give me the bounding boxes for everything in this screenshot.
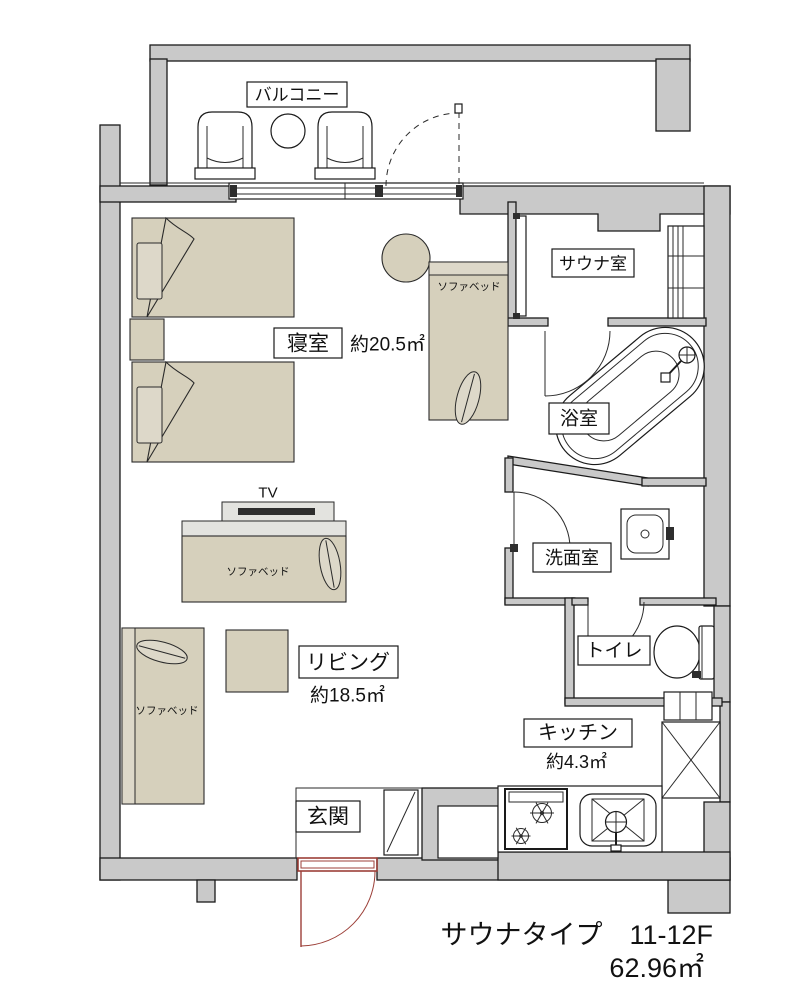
sofa-bed-center xyxy=(182,521,346,602)
balcony-left-wall xyxy=(150,59,167,185)
kitchen xyxy=(498,786,662,852)
sliding-window xyxy=(229,183,463,199)
top-left-wall xyxy=(100,186,236,202)
balcony-top-wall xyxy=(150,45,690,61)
sofa-bed-center-label: ソファベッド xyxy=(227,566,290,578)
bottom-right-nub xyxy=(668,880,730,913)
shelf-slats xyxy=(664,692,712,720)
entrance-niche xyxy=(438,806,498,858)
balcony xyxy=(195,112,375,179)
toilet-north-wall xyxy=(640,598,716,605)
washroom-label: 洗面室 xyxy=(545,548,599,568)
kitchen-area-label: 約4.3㎡ xyxy=(546,751,607,772)
bottom-left-nub xyxy=(197,880,215,902)
toilet xyxy=(654,626,714,679)
wash-basin xyxy=(621,509,674,559)
kitchen-sink xyxy=(580,794,656,851)
sofa-bed-left-label: ソファベッド xyxy=(136,705,199,717)
right-wall-shaft xyxy=(720,702,730,802)
top-right-wall xyxy=(460,186,730,231)
toilet-label: トイレ xyxy=(585,641,642,662)
balcony-right-wall xyxy=(656,59,690,131)
shoe-cabinet xyxy=(384,790,418,855)
nightstand xyxy=(130,319,164,360)
bedroom-label: 寝室 xyxy=(287,333,329,356)
plan-type-label: サウナタイプ 11-12F xyxy=(440,920,713,950)
tv-board xyxy=(222,502,334,521)
living-label: リビング xyxy=(306,652,390,675)
floor-plan-page: バルコニー 寝室 約20.5㎡ サウナ室 浴室 洗面室 トイレ リビング 約18… xyxy=(0,0,791,1000)
living-area-label: 約18.5㎡ xyxy=(310,684,385,707)
tv-label: TV xyxy=(258,485,277,502)
pipe-shaft xyxy=(662,722,720,798)
bed-top-pillow xyxy=(137,243,162,299)
washroom-west-wall-upper xyxy=(505,458,513,492)
bed-bottom-pillow xyxy=(137,387,162,443)
right-wall-mid xyxy=(714,606,730,702)
floor-plan-svg: バルコニー 寝室 約20.5㎡ サウナ室 浴室 洗面室 トイレ リビング 約18… xyxy=(0,0,791,1000)
balcony-chair-right xyxy=(315,112,375,179)
plan-total-area-label: 62.96㎡ xyxy=(609,953,704,983)
sauna-label: サウナ室 xyxy=(559,255,627,274)
balcony-table xyxy=(271,114,305,148)
entrance-door xyxy=(298,858,377,947)
balcony-door xyxy=(386,104,462,186)
sauna-west-wall xyxy=(508,202,516,324)
sauna-door-panel xyxy=(516,216,526,316)
square-table xyxy=(226,630,288,692)
sofa-bed-right-label: ソファベッド xyxy=(438,281,501,293)
balcony-label: バルコニー xyxy=(255,86,340,105)
kitchen-label: キッチン xyxy=(538,722,618,744)
round-table xyxy=(382,234,430,282)
right-wall-upper xyxy=(704,186,730,606)
sauna-bench xyxy=(668,226,704,318)
toilet-west-wall xyxy=(565,598,574,704)
washroom-west-wall-lower xyxy=(505,548,513,604)
sauna-bath-wall-east xyxy=(608,318,706,326)
bottom-left-wall xyxy=(100,858,297,880)
bathtub xyxy=(540,311,720,480)
bedroom-area-label: 約20.5㎡ xyxy=(350,333,425,356)
entrance-label: 玄関 xyxy=(307,806,349,829)
bottom-kitchen-wall xyxy=(498,852,730,880)
footer: サウナタイプ 11-12F 62.96㎡ xyxy=(440,920,713,983)
toilet-north-wall-stub xyxy=(572,598,588,605)
tv-screen xyxy=(238,508,315,515)
balcony-chair-left xyxy=(195,112,255,179)
bathroom xyxy=(540,311,720,480)
washroom-north-wall xyxy=(642,478,706,486)
left-wall xyxy=(100,125,120,880)
bath-label: 浴室 xyxy=(560,408,598,430)
sauna-bath-wall-west xyxy=(508,318,548,326)
